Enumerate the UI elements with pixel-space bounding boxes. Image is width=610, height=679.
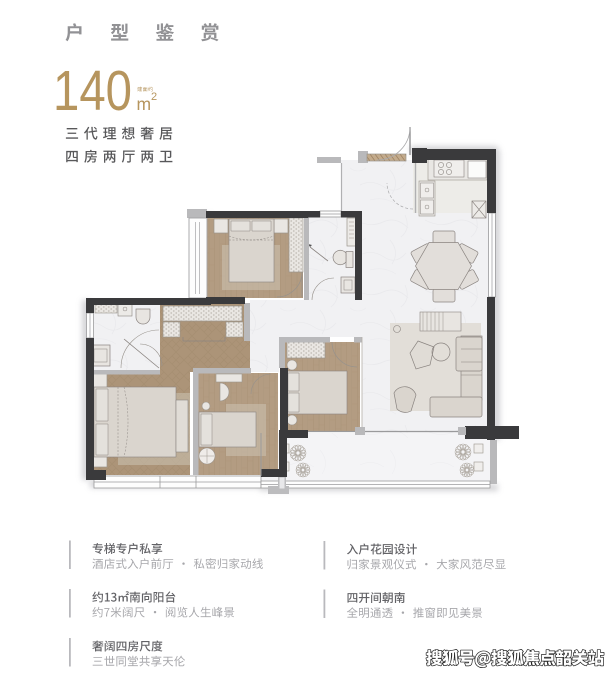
svg-text:2: 2 [151, 91, 157, 103]
svg-text:m: m [137, 94, 152, 114]
svg-text:140: 140 [53, 59, 132, 123]
